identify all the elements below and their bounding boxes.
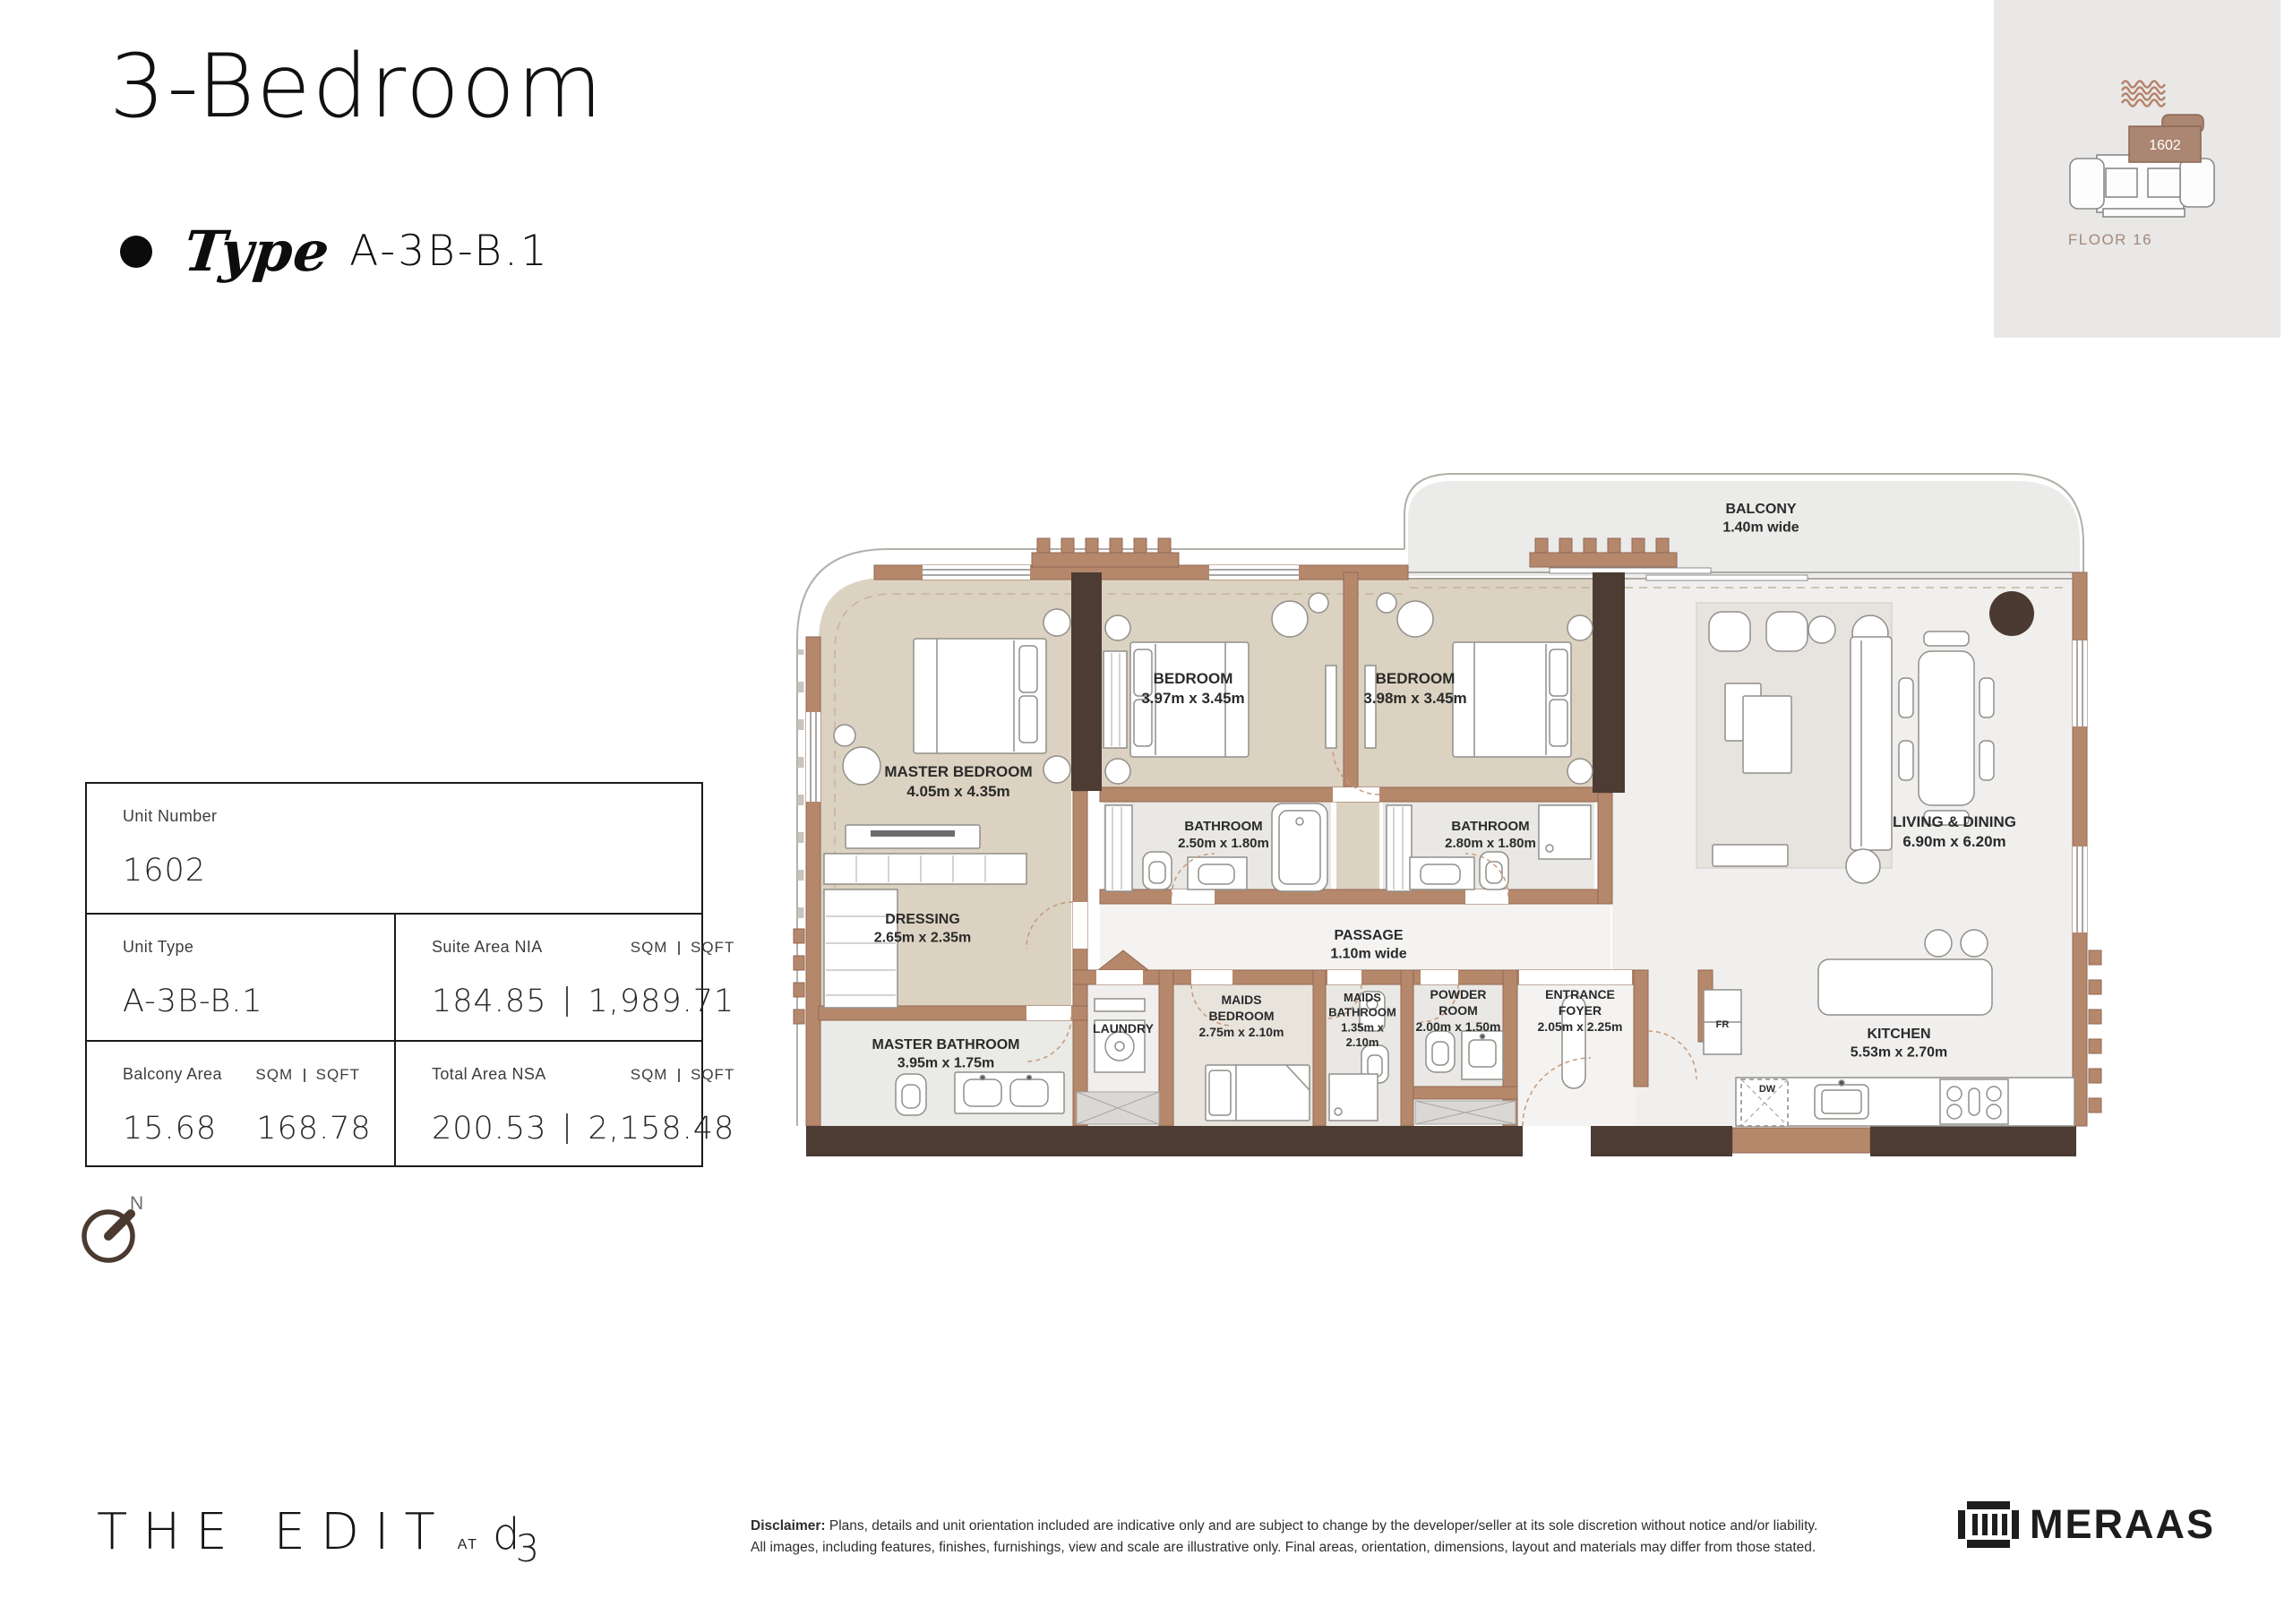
north-compass: N [76, 1191, 157, 1276]
total-area-cell: Total Area NSA SQMSQFT 200.532,158.48 [394, 1042, 769, 1165]
unit-type-value: A-3B-B.1 [123, 984, 263, 1019]
disclaimer-line1: Plans, details and unit orientation incl… [829, 1518, 1817, 1534]
balcony-area-cell: Balcony Area SQMSQFT 15.68168.78 [87, 1042, 394, 1165]
table-row: Unit Type A-3B-B.1 Suite Area NIA SQMSQF… [87, 913, 701, 1040]
suite-area-units: SQMSQFT [631, 939, 735, 957]
page-title: 3-Bedroom [109, 36, 604, 138]
meraas-icon [1958, 1501, 2019, 1548]
table-row: Balcony Area SQMSQFT 15.68168.78 Total A… [87, 1040, 701, 1165]
suite-area-cell: Suite Area NIA SQMSQFT 184.851,989.71 [394, 915, 769, 1040]
unit-type-cell: Unit Type A-3B-B.1 [87, 915, 394, 1040]
brand-at-label: AT [458, 1537, 478, 1553]
the-edit-wordmark: THE EDIT [97, 1503, 451, 1561]
suite-area-value: 184.851,989.71 [432, 984, 734, 1019]
total-area-value: 200.532,158.48 [432, 1111, 734, 1147]
type-code: A-3B-B.1 [349, 227, 550, 276]
building-locator-diagram: 1602 FLOOR 16 [1994, 0, 2280, 338]
floor-label: FLOOR 16 [2068, 231, 2152, 248]
unit-number-value: 1602 [123, 853, 206, 889]
floorplan-drawing: MASTER BEDROOM4.05m x 4.35mBEDROOM3.97m … [788, 461, 2105, 1182]
balcony-area-value: 15.68168.78 [123, 1111, 360, 1147]
balcony-area-units: SQMSQFT [255, 1066, 360, 1084]
floor-locator-panel: 1602 FLOOR 16 [1994, 0, 2280, 338]
balcony-area-label: Balcony Area [123, 1065, 222, 1084]
total-area-units: SQMSQFT [631, 1066, 735, 1084]
disclaimer-line2: All images, including features, finishes… [751, 1540, 1816, 1555]
meraas-wordmark: MERAAS [2030, 1501, 2215, 1548]
meraas-logo: MERAAS [1958, 1501, 2215, 1548]
room-label: LAUNDRY [1093, 1021, 1155, 1035]
building-footprint [2070, 115, 2214, 217]
suite-area-label: Suite Area NIA [432, 938, 543, 957]
unit-number-badge: 1602 [2149, 138, 2181, 153]
unit-number-label: Unit Number [123, 807, 217, 826]
unit-info-table: Unit Number 1602 Unit Type A-3B-B.1 Suit… [85, 782, 703, 1167]
floorplan-sheet: { "header": { "title": "3-Bedroom", "typ… [0, 0, 2293, 1624]
total-area-label: Total Area NSA [432, 1065, 546, 1084]
the-edit-logo: THE EDIT AT d3 [97, 1503, 539, 1561]
table-row: Unit Number 1602 [87, 784, 701, 913]
disclaimer-text: Disclaimer: Plans, details and unit orie… [751, 1516, 1888, 1559]
room-label: FR [1716, 1019, 1730, 1030]
waves-icon [2122, 82, 2165, 107]
unit-type-line: Type A-3B-B.1 [120, 219, 550, 284]
unit-type-label: Unit Type [123, 938, 193, 957]
disclaimer-label: Disclaimer: [751, 1518, 826, 1534]
type-script-label: Type [181, 219, 333, 284]
unit-number-cell: Unit Number 1602 [87, 784, 701, 913]
bullet-icon [120, 236, 152, 268]
column [1989, 591, 2034, 636]
d3-logo: d3 [493, 1509, 539, 1560]
room-label: DW [1759, 1084, 1776, 1095]
